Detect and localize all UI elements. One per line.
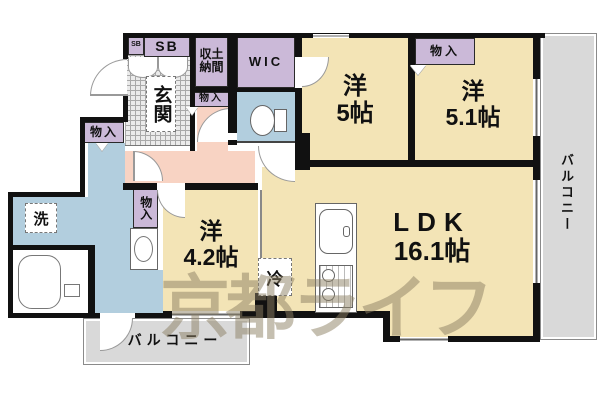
refrigerator-space: 冷 — [258, 258, 292, 296]
wall — [237, 88, 302, 92]
toilet-bowl — [250, 105, 275, 136]
wall — [8, 192, 85, 197]
balcony-right-text: バルコニー — [559, 153, 574, 233]
window — [313, 34, 349, 38]
walk-in-closet-label: WIC — [249, 55, 283, 69]
bathtub — [18, 255, 61, 309]
wall — [123, 33, 128, 59]
window — [400, 337, 448, 342]
washroom-floor-strip — [88, 143, 125, 197]
ldk-floor-lower — [387, 313, 533, 337]
closet-door-marker — [96, 143, 108, 151]
balcony-bottom-text: バルコニー — [128, 332, 223, 348]
vanity-sink — [134, 236, 153, 262]
storage-left-label: 物入 — [90, 126, 118, 139]
balcony-right-label: バルコニー — [552, 135, 576, 250]
shoe-box: SB — [144, 35, 190, 57]
storage-hall-label: 物入 — [199, 94, 223, 105]
storage-left: 物入 — [84, 122, 124, 143]
stove-burner — [322, 269, 335, 282]
wall — [190, 35, 195, 151]
wall — [295, 88, 302, 133]
wall — [185, 183, 258, 190]
wall — [228, 140, 237, 145]
ldk-name: LDK — [393, 208, 470, 237]
toilet-tank — [274, 109, 287, 132]
bedroom-5-name: 洋 — [343, 74, 367, 101]
door-opening — [157, 183, 185, 190]
closet-door-marker — [186, 107, 198, 115]
storage-mid-label: 物入 — [139, 196, 152, 220]
wall — [408, 33, 415, 163]
doma-storage: 収土 納間 — [195, 35, 228, 87]
window — [534, 79, 539, 136]
stove-burner — [322, 288, 335, 301]
shoe-cabinet-door-arc-2 — [158, 57, 188, 78]
wall — [448, 336, 540, 342]
window — [172, 312, 240, 317]
bedroom-5-size: 5帖 — [336, 101, 373, 128]
wall — [295, 160, 413, 167]
bedroom-51-label: 洋 5.1帖 — [425, 76, 521, 134]
storage-top: 物入 — [415, 38, 475, 65]
bedroom-42-name: 洋 — [200, 219, 223, 245]
shoe-box-small: SB — [128, 35, 144, 55]
bath-faucet — [64, 284, 80, 297]
bedroom-5-label: 洋 5帖 — [320, 72, 390, 130]
toilet-room-bottom-line — [237, 141, 295, 143]
bedroom-42-door-arc — [157, 190, 185, 218]
wall — [190, 87, 232, 92]
bedroom-42-label: 洋 4.2帖 — [167, 216, 255, 274]
shoe-box-label: SB — [155, 39, 178, 54]
wall — [123, 183, 157, 190]
genkan-label: 玄関 — [148, 85, 175, 123]
balcony-bottom-label: バルコニー — [110, 330, 240, 348]
wall — [8, 192, 13, 318]
wall — [533, 33, 540, 79]
front-door-arc — [90, 59, 127, 96]
laundry-space: 洗 — [25, 203, 57, 233]
ldk-label: LDK 16.1帖 — [368, 203, 496, 271]
storage-hall: 物入 — [190, 92, 232, 107]
wall — [8, 313, 100, 318]
washroom-floor-lower — [125, 270, 163, 313]
wall — [408, 160, 533, 167]
wall — [135, 313, 165, 318]
wall — [80, 117, 128, 122]
bedroom-51-size: 5.1帖 — [446, 105, 501, 131]
ldk-size: 16.1帖 — [394, 237, 471, 266]
wall — [13, 245, 93, 250]
storage-top-label: 物入 — [430, 45, 460, 58]
bedroom-51-name: 洋 — [462, 79, 485, 105]
shoe-cabinet-door-arc-1 — [128, 57, 158, 78]
wall — [383, 336, 400, 342]
kitchen-faucet — [343, 226, 350, 237]
shoe-box-small-label: SB — [131, 41, 141, 48]
wall — [163, 311, 172, 318]
walk-in-closet: WIC — [237, 35, 295, 88]
laundry-label: 洗 — [33, 208, 48, 229]
genkan-label-box: 玄関 — [146, 76, 176, 132]
pillar — [255, 293, 277, 313]
refrigerator-label: 冷 — [267, 265, 284, 290]
doma-storage-label-line2: 納間 — [199, 61, 223, 74]
wall — [80, 117, 85, 197]
wall — [295, 33, 302, 57]
floor-plan: SB SB 収土 納間 WIC 物入 物入 物入 物入 — [0, 0, 600, 400]
wall — [228, 33, 237, 133]
wall — [88, 245, 95, 315]
closet-door-marker — [410, 65, 426, 75]
wall — [533, 283, 540, 342]
bedroom-42-size: 4.2帖 — [184, 245, 239, 271]
wall — [533, 136, 540, 180]
washroom-door-leaf — [133, 151, 135, 181]
storage-mid: 物入 — [133, 188, 158, 228]
door-opening — [228, 133, 237, 140]
window — [534, 180, 539, 283]
